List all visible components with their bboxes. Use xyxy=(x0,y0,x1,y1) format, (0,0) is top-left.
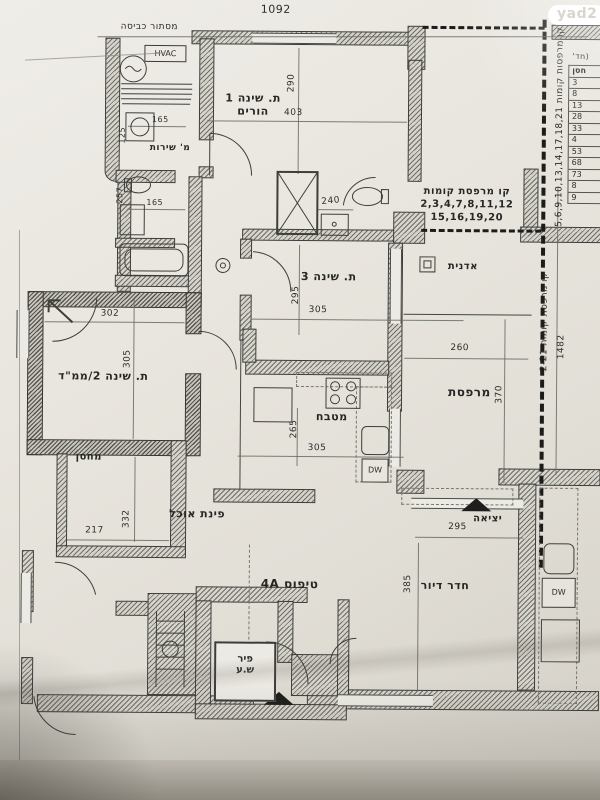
mamad-label: ת. שינה 2/ממ"ד xyxy=(58,369,148,383)
door-arc-mamad xyxy=(198,331,236,369)
storage-table-header: חסן xyxy=(569,66,600,78)
wall-living-right xyxy=(518,485,535,690)
wall-mamad-bottom xyxy=(28,440,188,455)
balcony-note-a1: קו מרפסת קומות xyxy=(409,185,524,199)
dim-b3-w: 305 xyxy=(309,305,328,315)
balcony-note-c: קו מרפסת קומות 2-21 xyxy=(539,266,550,378)
table-row: 8 xyxy=(568,181,600,193)
dimline-living-w xyxy=(415,537,523,539)
table-row: 53 xyxy=(569,146,600,158)
wall-neighbor-top xyxy=(499,469,599,485)
shaft-label-1: פיר xyxy=(216,653,274,664)
dimline-b3-w xyxy=(251,319,464,321)
kitchen-label: מטבח xyxy=(316,410,348,423)
planter-label: אדנית xyxy=(448,261,478,272)
bedroom1-label: ת. שינה 1 הורים xyxy=(217,91,289,118)
dim-swc-h: 125 xyxy=(118,127,127,144)
dimline-mamad-w xyxy=(45,321,185,323)
bedroom1-line2: הורים xyxy=(217,104,289,118)
dim-mamad-h: 305 xyxy=(123,349,133,368)
exit-triangle xyxy=(461,498,491,511)
dimline-living-h xyxy=(417,543,419,691)
window-bedroom3 xyxy=(390,249,403,324)
wall-mamad-left xyxy=(28,292,43,454)
dimline-b1-w xyxy=(207,120,407,122)
toilet-top-tank xyxy=(381,190,388,204)
wall-right-mid xyxy=(524,170,537,232)
neighbor-dishwasher: DW xyxy=(542,578,576,608)
table-row: 9 xyxy=(568,192,600,204)
side-table-title: (חד' xyxy=(572,52,589,61)
dim-kitchen-w: 305 xyxy=(308,443,327,453)
yad2-logo: yad2 xyxy=(548,5,600,25)
unit-type-label: טיפוס 4A xyxy=(261,577,319,591)
service-wc-label: מ' שירות xyxy=(150,143,191,153)
dimline-kitchen-w xyxy=(238,456,404,458)
dimline-mamad-h xyxy=(133,299,135,439)
dim-bath2-h: 257 xyxy=(115,187,124,204)
planter-icon-inner xyxy=(424,261,431,268)
dimline-bath2-w xyxy=(127,209,185,210)
dim-balcony-w: 260 xyxy=(450,343,469,353)
door-arc-bedroom3 xyxy=(253,252,291,292)
dim-total-height: 1482 xyxy=(556,330,566,364)
dim-storage-h: 332 xyxy=(121,509,131,528)
balcony-label: מרפסת xyxy=(448,385,491,399)
wall-bedroom1-left-stub xyxy=(200,167,213,177)
laundry-louvers xyxy=(121,84,192,104)
floorplan-photo: HVAC פיר ש.ע DW DW מסתור כביסה מ' שירות … xyxy=(0,0,600,800)
toilet-top xyxy=(352,187,382,205)
dim-bath2-w: 165 xyxy=(146,198,163,207)
dim-total-width: 1092 xyxy=(261,3,291,16)
wall-kitchen-left-stub xyxy=(243,330,255,362)
wall-bedroom3-left-up xyxy=(241,240,251,258)
kitchen-counter xyxy=(296,372,392,388)
dimline-total-width xyxy=(98,36,588,37)
exit-label: יציאה xyxy=(473,513,502,524)
wall-mamad-right-upper xyxy=(186,293,200,333)
burner-3 xyxy=(330,395,339,404)
table-row: 33 xyxy=(569,123,600,135)
dining-cabinet xyxy=(254,388,292,422)
balcony-note-b: קו מרפסות קומות 5,6,9,10,13,14,17,18,21 xyxy=(554,16,566,238)
table-row: 8 xyxy=(569,89,600,101)
dim-balcony-h: 370 xyxy=(494,385,504,404)
storage-table: חסן 3 8 13 28 33 4 53 68 73 8 9 xyxy=(567,65,600,204)
dim-kitchen-h: 265 xyxy=(289,420,299,439)
wall-kitchen-bottom xyxy=(214,489,314,502)
dim-b1-w: 403 xyxy=(284,108,303,118)
wall-bath-div2 xyxy=(116,239,174,247)
bedroom1-line1: ת. שינה 1 xyxy=(217,91,289,105)
dim-b3-h: 295 xyxy=(291,286,301,305)
bedroom3-label: ת. שינה 3 xyxy=(301,270,357,283)
window-mamad xyxy=(16,310,29,358)
wall-bedroom1-right xyxy=(409,61,422,181)
laundry-label: מסתור כביסה xyxy=(121,22,179,32)
dim-b1-h: 290 xyxy=(286,74,296,93)
dishwasher: DW xyxy=(361,458,388,482)
service-shaft-box: פיר ש.ע xyxy=(214,641,276,701)
exit-threshold xyxy=(401,488,513,506)
door-arc-bath-top xyxy=(343,177,375,205)
floorplan-drawing: HVAC פיר ש.ע DW DW מסתור כביסה מ' שירות … xyxy=(0,0,600,800)
shaft-box xyxy=(277,172,317,234)
table-row: 4 xyxy=(569,135,600,147)
wall-storage-bottom xyxy=(57,546,185,557)
bathtub-inner xyxy=(125,249,183,271)
wall-storage-right xyxy=(171,441,186,553)
hvac-unit: HVAC xyxy=(144,45,186,62)
wall-entry-right xyxy=(338,600,349,695)
table-row: 73 xyxy=(569,169,600,181)
shaft-label-2: ש.ע xyxy=(216,664,274,675)
balcony-line-top xyxy=(423,26,545,30)
dim-living-h: 385 xyxy=(403,574,413,593)
wall-bath-div1 xyxy=(117,171,175,182)
dining-label: פינת אוכל xyxy=(169,507,225,520)
wall-core-bottom xyxy=(196,704,346,719)
wall-core-mid xyxy=(278,602,292,662)
living-label: חדר דיור xyxy=(421,579,470,592)
washing-machine-mark xyxy=(125,66,141,71)
bathtub xyxy=(120,244,188,276)
line-hall-kitchen xyxy=(239,340,241,490)
dim-swc-w: 165 xyxy=(152,115,169,124)
wall-bedroom1-left xyxy=(200,39,214,139)
door-arc-bedroom1 xyxy=(210,133,252,175)
balcony-note-a3: 15,16,19,20 xyxy=(409,211,524,225)
table-row: 28 xyxy=(569,112,600,124)
table-row: 13 xyxy=(569,100,600,112)
washing-machine-icon xyxy=(120,56,146,82)
storage-label: מחסן xyxy=(76,451,102,462)
dimline-storage-h xyxy=(134,457,136,542)
sink-top-drain xyxy=(332,222,336,226)
wall-mamad-right-lower xyxy=(186,374,201,455)
wall-mamad-top xyxy=(29,292,201,307)
wall-bath-bottom xyxy=(116,276,194,287)
wall-dining-left-dn xyxy=(22,658,32,703)
planter-icon xyxy=(420,257,435,272)
wall-laundry-left xyxy=(106,39,120,181)
ceiling-symbol-inner xyxy=(220,263,225,268)
window-bedroom1 xyxy=(252,33,336,45)
ceiling-symbol xyxy=(216,258,230,272)
dim-bath-w: 240 xyxy=(321,195,341,207)
wall-corridor-left xyxy=(189,177,202,293)
dim-storage-w: 217 xyxy=(85,526,104,536)
dimline-storage-w xyxy=(67,539,169,541)
door-arc-dining xyxy=(55,562,96,594)
window-living-bottom xyxy=(338,694,433,707)
shaft-x xyxy=(277,172,317,234)
wall-storage-left xyxy=(57,454,67,550)
line-balcony-top xyxy=(404,314,532,316)
wall-core-left xyxy=(196,601,211,711)
table-row: 68 xyxy=(569,158,600,170)
balcony-note-a: קו מרפסת קומות 2,3,4,7,8,11,12 15,16,19,… xyxy=(409,185,524,225)
dim-mamad-w: 302 xyxy=(101,309,120,319)
table-row: 3 xyxy=(569,77,600,89)
balcony-note-a2: 2,3,4,7,8,11,12 xyxy=(409,198,524,212)
dimline-swc-w xyxy=(128,126,186,127)
wall-stair-block xyxy=(148,594,197,694)
window-dining xyxy=(20,573,31,623)
dim-living-w: 295 xyxy=(448,522,467,532)
burner-4 xyxy=(346,395,355,404)
dimline-bath-w xyxy=(317,209,353,210)
dimline-balcony-w xyxy=(404,358,528,360)
balcony-line-mid xyxy=(421,229,541,233)
